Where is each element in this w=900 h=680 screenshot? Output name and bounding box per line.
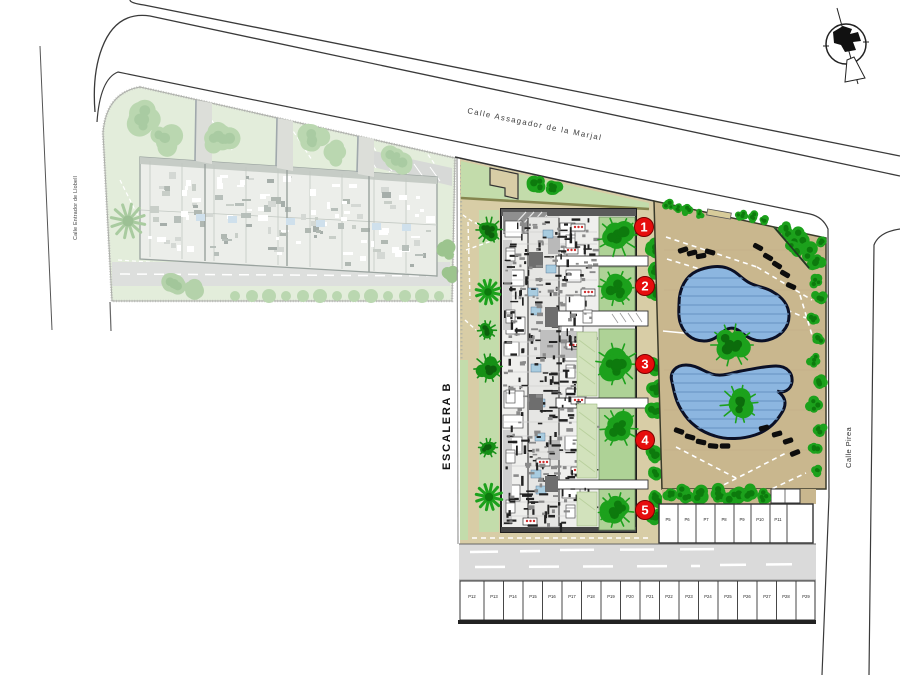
svg-text:P20: P20 — [626, 594, 634, 599]
svg-text:3: 3 — [641, 357, 648, 372]
svg-text:P15: P15 — [529, 594, 537, 599]
svg-text:P5: P5 — [665, 517, 671, 522]
svg-text:P12: P12 — [468, 594, 476, 599]
svg-text:2: 2 — [641, 279, 648, 294]
svg-text:P21: P21 — [646, 594, 654, 599]
svg-text:P14: P14 — [509, 594, 517, 599]
svg-text:P26: P26 — [743, 594, 751, 599]
svg-text:P11: P11 — [774, 517, 782, 522]
svg-text:P28: P28 — [782, 594, 790, 599]
svg-text:P25: P25 — [724, 594, 732, 599]
svg-text:P13: P13 — [490, 594, 498, 599]
svg-text:P17: P17 — [568, 594, 576, 599]
svg-text:P24: P24 — [704, 594, 712, 599]
svg-text:5: 5 — [641, 503, 648, 518]
svg-text:Calle Entrador de Llobell: Calle Entrador de Llobell — [73, 176, 79, 240]
svg-text:P27: P27 — [763, 594, 771, 599]
svg-text:P6: P6 — [684, 517, 690, 522]
svg-text:P18: P18 — [587, 594, 595, 599]
svg-text:P8: P8 — [721, 517, 727, 522]
svg-text:P9: P9 — [739, 517, 745, 522]
svg-text:P16: P16 — [548, 594, 556, 599]
svg-text:4: 4 — [641, 433, 649, 448]
svg-text:P10: P10 — [756, 517, 764, 522]
svg-text:1: 1 — [640, 220, 647, 235]
svg-text:P23: P23 — [685, 594, 693, 599]
svg-text:P7: P7 — [703, 517, 709, 522]
svg-text:P19: P19 — [607, 594, 615, 599]
svg-text:P29: P29 — [802, 594, 810, 599]
svg-text:ESCALERA B: ESCALERA B — [441, 382, 453, 470]
svg-text:Calle Pirea: Calle Pirea — [844, 426, 853, 468]
svg-text:P22: P22 — [665, 594, 673, 599]
